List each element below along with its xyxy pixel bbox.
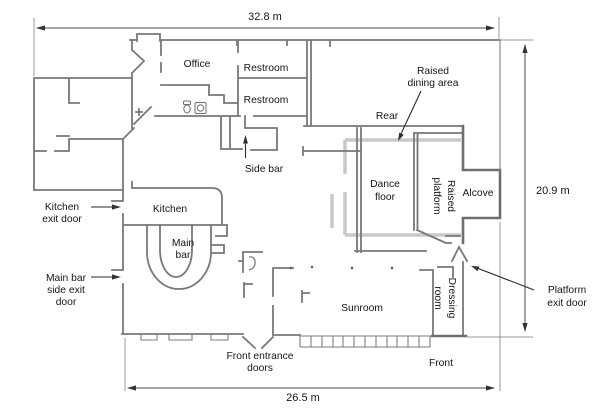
labels: 32.8 m 20.9 m 26.5 m Office Restroom Res… bbox=[42, 11, 587, 404]
room-label-side-bar: Side bar bbox=[245, 164, 284, 175]
room-label-dressing-room-2: room bbox=[432, 286, 443, 309]
room-label-main-bar-2: bar bbox=[176, 250, 191, 261]
room-label-restroom-upper: Restroom bbox=[244, 63, 289, 74]
callout-platform-exit-2: exit door bbox=[547, 298, 587, 309]
dim-top-label: 32.8 m bbox=[248, 11, 282, 23]
room-label-front: Front bbox=[429, 358, 453, 369]
restroom-fixtures bbox=[184, 101, 207, 114]
room-label-raised-platform-2: platform bbox=[431, 177, 442, 214]
room-label-dance-floor-1: Dance bbox=[370, 179, 400, 190]
dim-bottom-label: 26.5 m bbox=[286, 392, 320, 404]
room-label-office: Office bbox=[184, 59, 211, 70]
room-label-restroom-lower: Restroom bbox=[244, 95, 289, 106]
callout-raised-dining-2: dining area bbox=[408, 78, 459, 89]
room-label-rear: Rear bbox=[376, 111, 399, 122]
callout-raised-dining-1: Raised bbox=[417, 66, 449, 77]
room-label-sunroom: Sunroom bbox=[341, 303, 383, 314]
callout-main-bar-exit-1: Main bar bbox=[46, 273, 87, 284]
sink-basin-icon bbox=[197, 105, 203, 111]
dim-right-label: 20.9 m bbox=[536, 185, 570, 197]
callout-platform-exit-1: Platform bbox=[548, 285, 586, 296]
callout-front-entrance-1: Front entrance bbox=[227, 351, 294, 362]
windows bbox=[141, 334, 430, 347]
callout-kitchen-exit-1: Kitchen bbox=[45, 202, 80, 213]
toilet-tank-icon bbox=[184, 101, 191, 105]
callout-main-bar-exit-3: door bbox=[56, 297, 77, 308]
floor-plan-diagram: 32.8 m 20.9 m 26.5 m Office Restroom Res… bbox=[0, 0, 600, 417]
raised-dining-arrow bbox=[400, 91, 421, 136]
callout-kitchen-exit-2: exit door bbox=[42, 214, 82, 225]
room-label-alcove: Alcove bbox=[463, 188, 494, 199]
callout-main-bar-exit-2: side exit bbox=[47, 285, 85, 296]
support-posts bbox=[290, 266, 393, 269]
room-label-kitchen: Kitchen bbox=[153, 204, 188, 215]
room-label-main-bar-1: Main bbox=[172, 238, 195, 249]
floor-plan-canvas: 32.8 m 20.9 m 26.5 m Office Restroom Res… bbox=[0, 0, 600, 417]
room-label-raised-platform-1: Raised bbox=[445, 180, 456, 212]
sink-icon bbox=[195, 103, 206, 114]
room-label-dressing-room-1: Dressing bbox=[446, 278, 457, 319]
service-counter-curl bbox=[249, 257, 255, 270]
callout-front-entrance-2: doors bbox=[247, 363, 273, 374]
room-label-dance-floor-2: floor bbox=[375, 192, 396, 203]
toilet-icon bbox=[184, 105, 190, 113]
